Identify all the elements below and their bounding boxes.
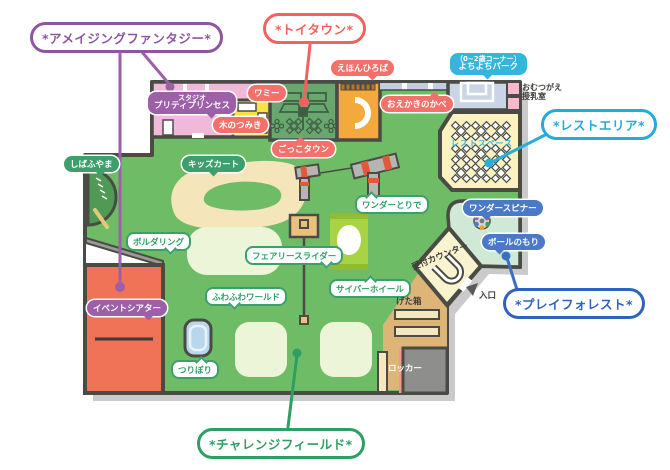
fishing-pool xyxy=(185,320,211,356)
studio-line2: プリティプリンセス xyxy=(154,102,230,112)
label-gokko-town: ごっこタウン xyxy=(272,141,335,157)
yochiyochi-park-room xyxy=(448,82,512,110)
label-wood-blocks: 木のつみき xyxy=(213,117,268,133)
yochiyochi-line2: よちよちパーク xyxy=(456,63,521,73)
label-kids-cart: キッズカート xyxy=(182,156,245,172)
legend-play-forest: *プレイフォレスト* xyxy=(503,288,645,319)
playground-floor-map: *アメイジングファンタジー* *トイタウン* *レストエリア* *プレイフォレス… xyxy=(0,0,670,470)
legend-toy-town: *トイタウン* xyxy=(263,13,366,44)
label-shoe-shelf: げた箱 xyxy=(396,295,422,307)
nursing-line2: 授乳室 xyxy=(522,92,562,101)
nursing-rooms xyxy=(507,82,520,110)
label-picture-book-plaza: えほんひろば xyxy=(331,60,394,76)
nursing-line1: おむつがえ xyxy=(522,83,562,92)
label-nursing-room: おむつがえ 授乳室 xyxy=(522,83,562,101)
label-rest-space: レストスペース xyxy=(451,138,513,149)
label-yochiyochi-park: 〔0~2歳コーナー〕 よちよちパーク xyxy=(450,53,527,75)
label-event-theater: イベントシアター xyxy=(87,300,167,316)
label-studio-pretty-princess: スタジオ プリティプリンセス xyxy=(148,92,236,114)
legend-rest-area: *レストエリア* xyxy=(541,109,657,140)
label-wonder-spinner: ワンダースピナー xyxy=(463,200,543,216)
label-fishing-pool: つりぼり xyxy=(171,360,219,379)
drawing-wall xyxy=(380,83,448,90)
label-entrance: 入口 xyxy=(479,289,496,301)
label-drawing-wall: おえかきのかべ xyxy=(381,96,453,112)
label-wonder-fort: ワンダーとりで xyxy=(355,195,429,214)
label-fairy-slider: フェアリースライダー xyxy=(245,246,343,265)
legend-amazing-fantasy: *アメイジングファンタジー* xyxy=(30,22,223,53)
legend-challenge-field: *チャレンジフィールド* xyxy=(197,428,365,459)
label-ball-forest: ボールのもり xyxy=(482,234,545,250)
label-bouldering: ボルダリング xyxy=(126,232,191,251)
label-locker: ロッカー xyxy=(388,362,422,374)
label-wammy: ワミー xyxy=(248,85,286,101)
label-shibafuyama: しばふやま xyxy=(64,156,119,172)
label-fuwafuwa-world: ふわふわワールド xyxy=(205,287,287,306)
rest-space-tables xyxy=(452,122,511,183)
picture-book-room xyxy=(337,82,380,140)
